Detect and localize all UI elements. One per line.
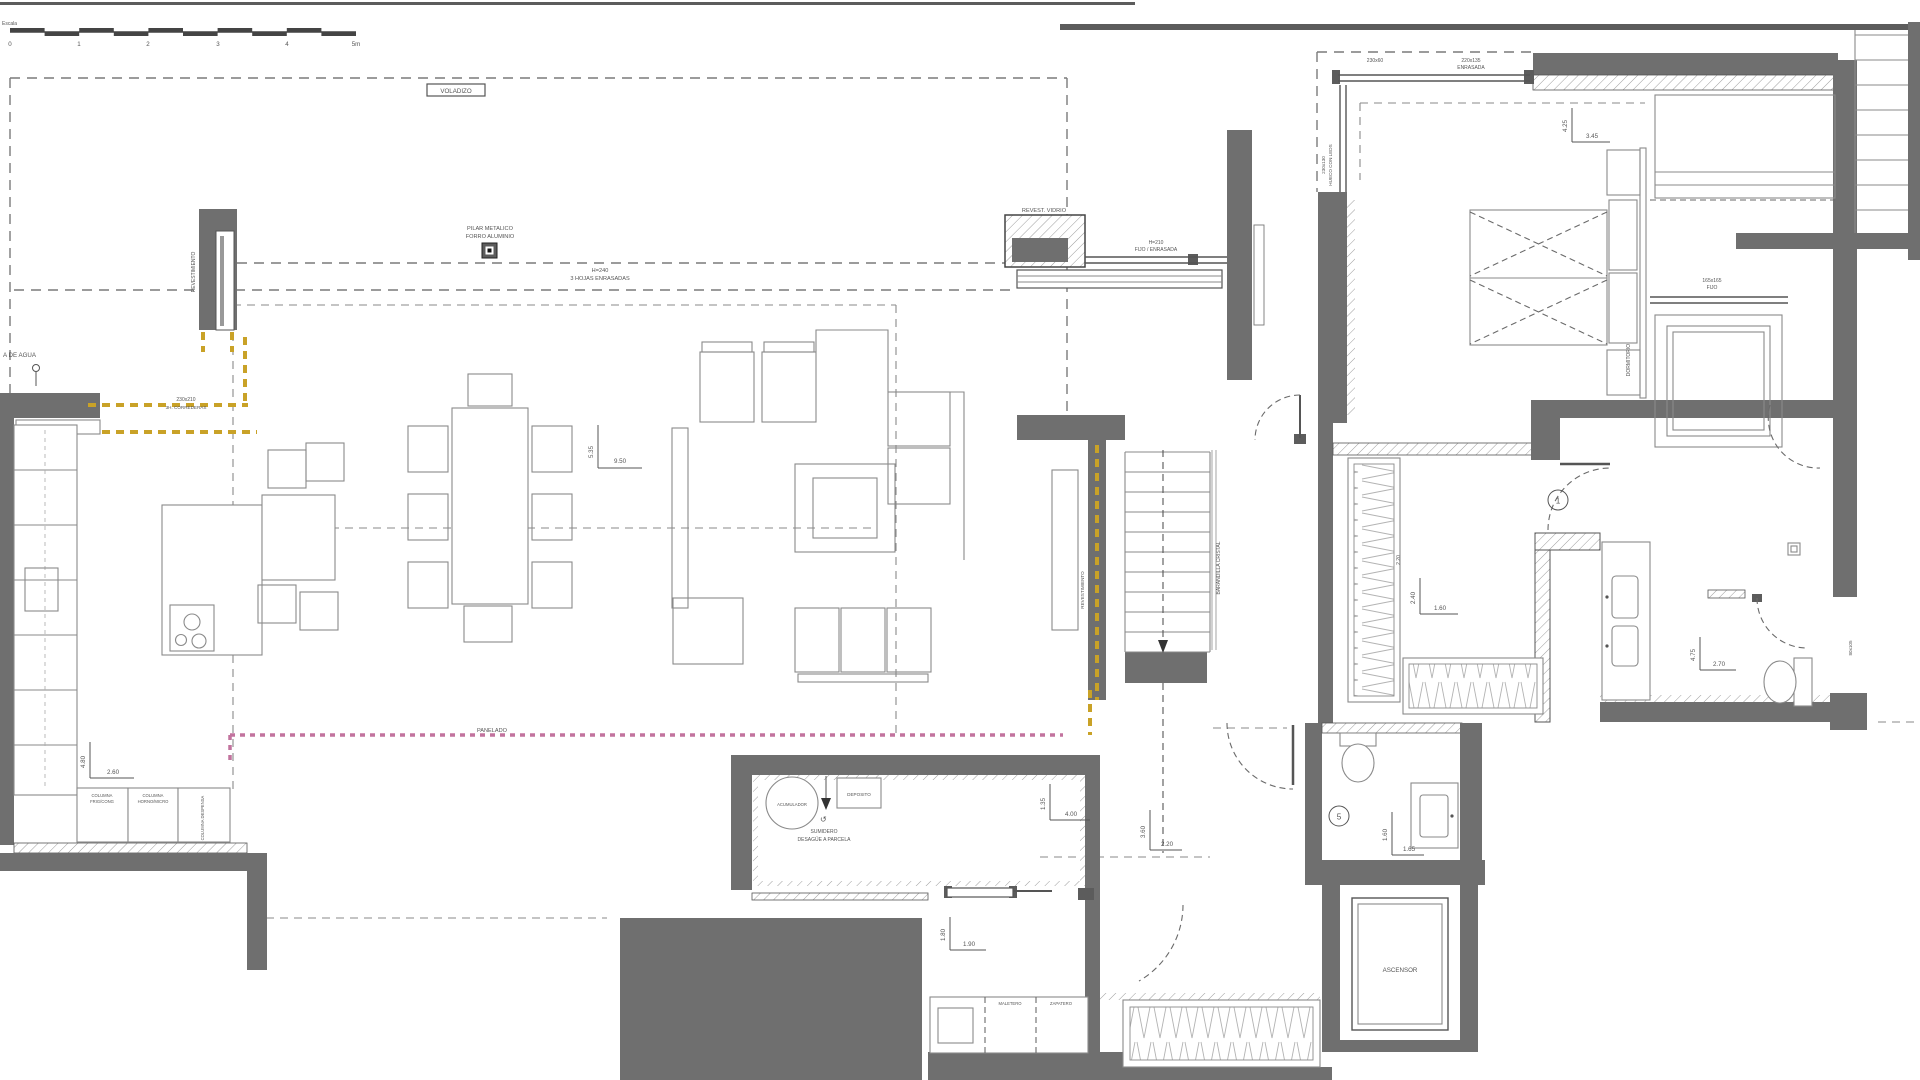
door-swing [1139, 905, 1183, 981]
window-230x130-label-2: HUECO CON LEDS [1328, 144, 1333, 185]
door-swing [1757, 598, 1807, 648]
voladizo-label: VOLADIZO [440, 88, 471, 95]
panelado-label: PANELADO [477, 728, 508, 734]
window-165-label-1: 165x165 [1702, 278, 1721, 284]
guest-wc [1340, 733, 1458, 848]
door-swing [1255, 395, 1300, 440]
sumidero-label-1: SUMIDERO [811, 829, 838, 835]
cabinet-col2-label-2: HORNO/MICRO [138, 799, 169, 804]
window-220x135-label-1: 220x135 [1461, 58, 1480, 64]
scale-tick-5: 5m [352, 41, 361, 48]
window-165-label-2: FIJO [1707, 285, 1718, 291]
revestimiento-label-2: REVESTIMIENTO [1080, 571, 1085, 609]
elevator: ASCENSOR [1340, 890, 1460, 1040]
svg-text:1.60: 1.60 [1434, 605, 1447, 612]
closet-220-label: 2.20 [1396, 555, 1402, 565]
dining-chair [408, 562, 448, 608]
svg-text:4.00: 4.00 [1065, 811, 1078, 818]
dining-chair [532, 494, 572, 540]
toilet [1764, 661, 1796, 703]
svg-text:4.75: 4.75 [1690, 648, 1697, 661]
acumulador-label: ACUMULADOR [777, 802, 807, 807]
pilar-label-1: PILAR METALICO [467, 226, 514, 232]
cabinet-col1-label-2: FRIG/CONG [90, 799, 114, 804]
stool [306, 443, 344, 481]
svg-text:5.35: 5.35 [588, 445, 595, 458]
stair-direction-arrow [1158, 640, 1168, 653]
svg-text:1.35: 1.35 [1040, 797, 1047, 810]
coffee-table [795, 464, 895, 552]
tv-sideboard [672, 428, 688, 608]
svg-text:3.45: 3.45 [1586, 133, 1599, 140]
scale-tick-3: 3 [216, 41, 220, 48]
overhang-dashed-lines [10, 52, 1920, 918]
dim-entry: 1.80 1.90 [940, 917, 986, 950]
dining-chair [468, 374, 512, 406]
svg-text:1.90: 1.90 [963, 941, 976, 948]
dining-chair [532, 562, 572, 608]
window-230x210-label-2: 3H. CORREDERAS [166, 405, 207, 410]
svg-text:1.65: 1.65 [1403, 846, 1416, 853]
exterior-staircase [1855, 30, 1908, 233]
hojas-label-1: H=240 [592, 268, 609, 274]
svg-text:9.50: 9.50 [614, 458, 627, 465]
pilar-label-2: FORRO ALUMINIO [466, 234, 515, 240]
dim-bath: 4.75 2.70 [1690, 637, 1736, 670]
dim-closet: 2.40 1.60 [1410, 578, 1458, 614]
shower [1655, 315, 1782, 447]
sofa-group [672, 330, 964, 682]
window-230x210-label-1: 230x210 [176, 397, 195, 403]
svg-text:3.60: 3.60 [1140, 825, 1147, 838]
window-230x130-label-1: 230x130 [1321, 156, 1326, 174]
dining-chair [464, 606, 512, 642]
cabinet-col2-label-1: COLUMNA [143, 793, 164, 798]
toilet [1342, 744, 1374, 782]
dining-chair [408, 426, 448, 472]
svg-text:2.60: 2.60 [107, 769, 120, 776]
scale-tick-4: 4 [285, 41, 289, 48]
lateral-80x105-label: 80x105 [1848, 640, 1853, 656]
sofa-seat [887, 608, 931, 672]
bathroom [1602, 315, 1812, 706]
svg-text:1.80: 1.80 [940, 928, 947, 941]
elevator-label: ASCENSOR [1383, 967, 1418, 974]
top-border [0, 2, 1920, 30]
barandilla-label: BARANDILLA CRISTAL [1216, 541, 1222, 594]
window-220x135-label-2: ENRASADA [1457, 65, 1485, 71]
dim-bedroom: 4.25 3.45 [1562, 108, 1610, 142]
svg-text:2.70: 2.70 [1713, 661, 1726, 668]
pillow [1609, 200, 1637, 270]
scale-tick-1: 1 [77, 41, 81, 48]
dim-hall: 3.60 2.20 [1140, 810, 1182, 850]
scale-tick-0: 0 [8, 41, 12, 48]
stair-shelf [1052, 470, 1078, 630]
stool [258, 585, 296, 623]
fijo-label-1: H=210 [1149, 240, 1164, 246]
fijo-label-2: FIJO / ENRASADA [1135, 247, 1178, 253]
revestimiento-label-1: REVESTIMIENTO [191, 252, 197, 293]
svg-text:4.80: 4.80 [80, 755, 87, 768]
window-230x60-label: 230x60 [1367, 58, 1384, 64]
sumidero-label-2: DESAGÜE A PARCELA [798, 836, 852, 843]
armchair [700, 352, 754, 422]
svg-text:2.20: 2.20 [1161, 841, 1174, 848]
scale-title: Escala [2, 21, 17, 27]
entry-hall [930, 886, 1320, 1067]
agua-label: A DE AGUA [3, 352, 37, 359]
dining-chair [408, 494, 448, 540]
deposito-label: DEPOSITO [847, 792, 871, 797]
cabinet-col3-label: COLUMNA DESPENSA [200, 795, 205, 840]
armchair [762, 352, 816, 422]
floor-plan-drawing: Escala 0 1 2 3 4 5m [0, 0, 1920, 1080]
maletero-label: MALETERO [998, 1001, 1022, 1006]
scale-bar: Escala 0 1 2 3 4 5m [2, 21, 360, 48]
sofa-seat [888, 448, 950, 504]
dormitorio-label: DORMITORIO [1626, 344, 1632, 377]
kitchen [14, 420, 344, 842]
toilet-tank [1794, 658, 1812, 706]
dining-chair [532, 426, 572, 472]
entry-sliding-door [947, 888, 1013, 897]
vanity [1602, 542, 1650, 700]
walk-in-closet [1348, 458, 1543, 714]
floor-plan-page: Escala 0 1 2 3 4 5m [0, 0, 1920, 1080]
svg-text:1.60: 1.60 [1382, 828, 1389, 841]
svg-text:4.25: 4.25 [1562, 119, 1569, 132]
stool [300, 592, 338, 630]
sofa-seat [841, 608, 885, 672]
pillow [1609, 273, 1637, 343]
drain-symbol: ↺ [820, 815, 827, 824]
cabinet-col1-label-1: COLUMNA [92, 793, 113, 798]
kitchen-island [162, 505, 262, 655]
nightstand [1607, 150, 1640, 195]
svg-text:2.40: 2.40 [1410, 591, 1417, 604]
sofa-seat [888, 392, 950, 446]
windows-and-tracks [1017, 75, 1788, 303]
sofa-seat [795, 608, 839, 672]
wardrobe [1655, 95, 1835, 198]
door-swing [1227, 723, 1293, 789]
dim-living: 5.35 9.50 [588, 425, 642, 468]
door-tag-1: 1 [1556, 497, 1561, 506]
zapatero-label: ZAPATERO [1050, 1001, 1073, 1006]
scale-tick-2: 2 [146, 41, 150, 48]
dim-kitchen: 4.80 2.60 [80, 742, 134, 778]
main-staircase [1052, 450, 1216, 853]
door-tag-5: 5 [1337, 813, 1342, 822]
dining-table-set [408, 374, 572, 642]
stool [268, 450, 306, 488]
nightstand [1607, 350, 1640, 395]
island-table [262, 495, 335, 580]
hojas-label-2: 3 HOJAS ENRASADAS [570, 276, 630, 282]
revest-vidrio-label: REVEST. VIDRIO [1022, 208, 1067, 214]
